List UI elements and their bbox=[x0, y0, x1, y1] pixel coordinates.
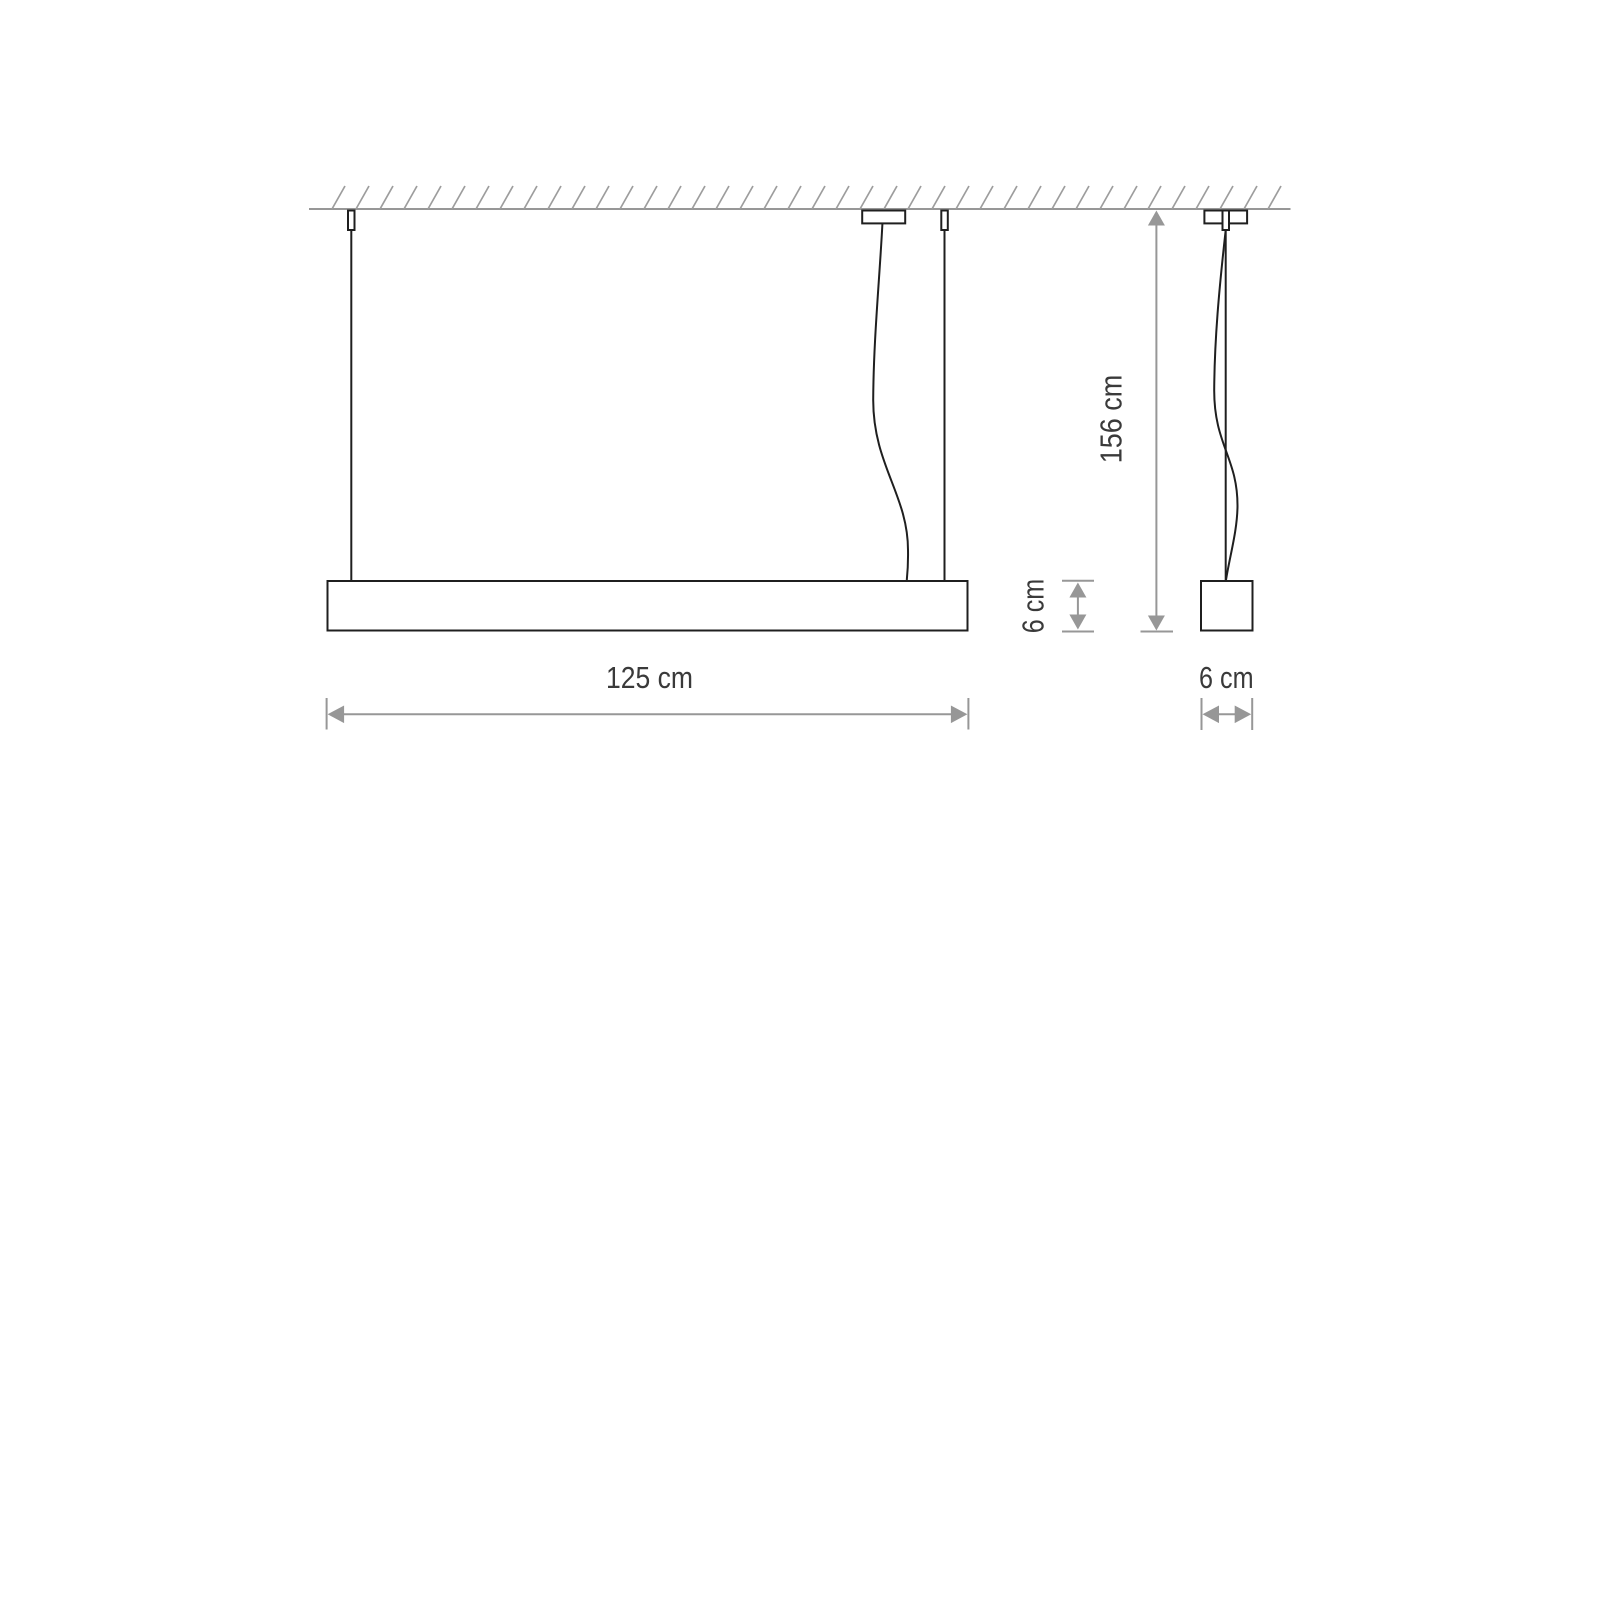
svg-text:156 cm: 156 cm bbox=[1095, 375, 1129, 464]
svg-text:6 cm: 6 cm bbox=[1017, 579, 1051, 634]
svg-text:125 cm: 125 cm bbox=[606, 661, 693, 695]
svg-text:6 cm: 6 cm bbox=[1199, 661, 1254, 695]
